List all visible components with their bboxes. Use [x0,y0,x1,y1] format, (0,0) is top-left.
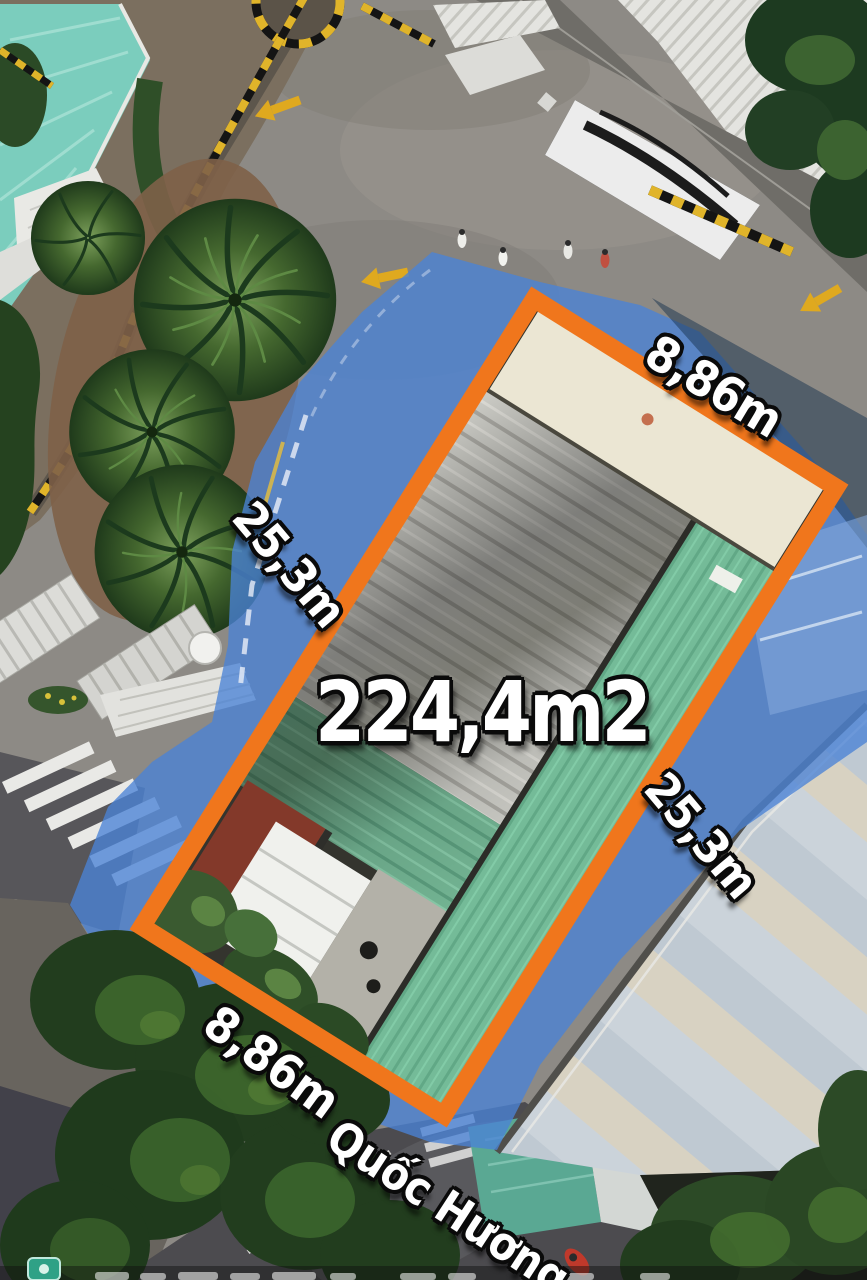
palm-tree [31,181,145,295]
satellite-scene [0,0,867,1280]
area-label: 224,4m2 [315,663,649,761]
dome-roof [189,632,221,664]
aerial-listing-photo: 224,4m2 8,86m 25,3m 25,3m 8,86m Quốc Hươ… [0,0,867,1280]
